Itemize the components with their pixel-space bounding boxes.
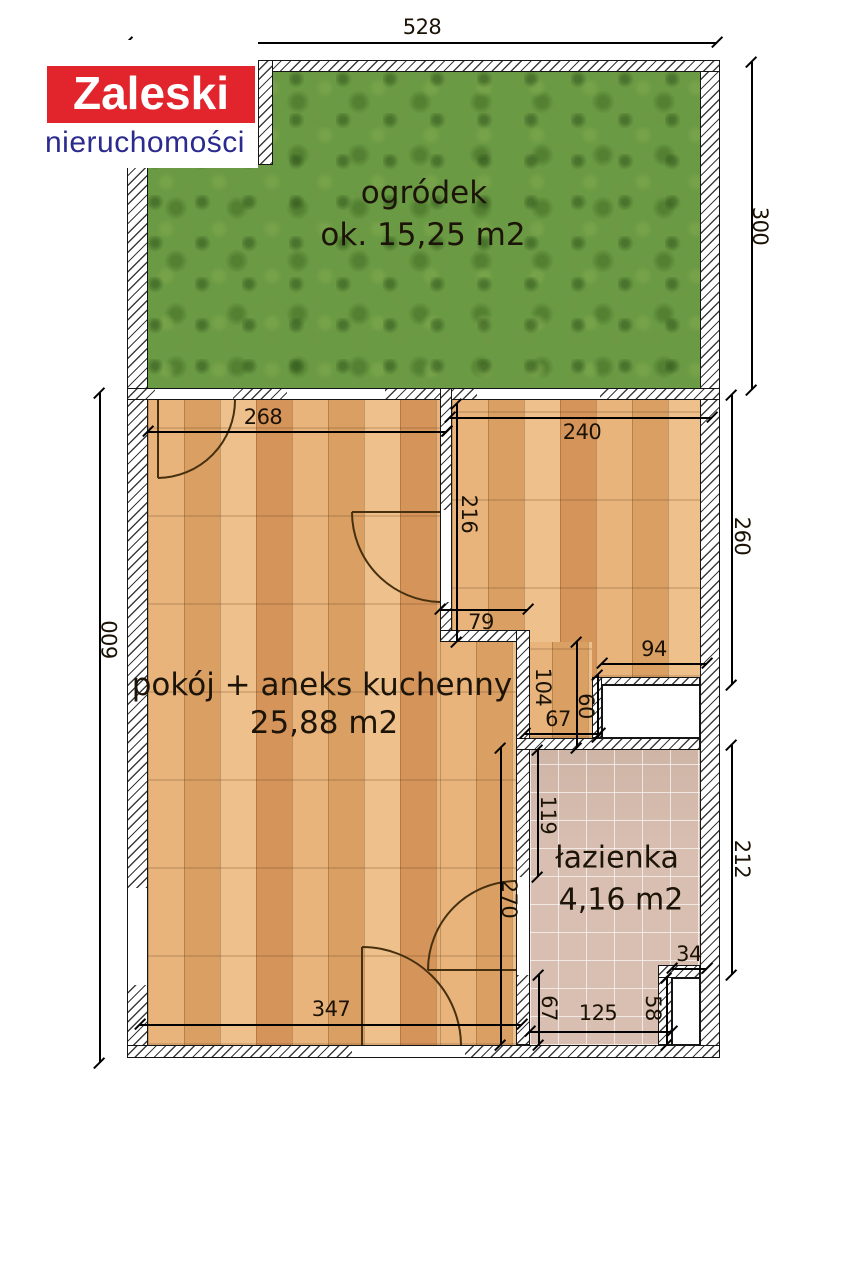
- floor-plan: ogródek ok. 15,25 m2 pokój + aneks kuche…: [0, 0, 853, 1280]
- dimension-label-216: 216: [457, 495, 481, 534]
- dimension-line-125: [530, 1031, 672, 1033]
- dimension-label-528: 528: [403, 15, 442, 39]
- wall-bathroom-top: [516, 738, 700, 750]
- logo-subtitle: nieruchomości: [45, 126, 245, 160]
- bathroom-label: łazienka: [555, 841, 679, 876]
- garden-label: ogródek: [361, 175, 487, 211]
- dimension-line-600: [99, 393, 101, 1063]
- dimension-line-268: [148, 431, 447, 433]
- dimension-label-94: 94: [641, 637, 667, 661]
- dimension-label-104: 104: [531, 668, 555, 707]
- bathroom-area-label: 4,16 m2: [559, 883, 684, 918]
- dimension-label-60: 60: [574, 693, 598, 719]
- garden-door-opening: [155, 388, 233, 400]
- window-living: [287, 388, 385, 400]
- dimension-label-67: 67: [537, 995, 561, 1021]
- logo-brand-text: Zaleski: [73, 70, 229, 120]
- dimension-label-260: 260: [730, 517, 754, 556]
- dimension-line-240: [450, 417, 712, 419]
- dimension-label-79: 79: [468, 610, 494, 634]
- dimension-label-347: 347: [312, 997, 351, 1021]
- living-room-label: pokój + aneks kuchenny: [132, 667, 512, 703]
- wall-right: [700, 60, 720, 1058]
- entrance-door-opening: [352, 1045, 465, 1058]
- logo: Zaleski: [47, 66, 255, 123]
- bathroom-shaft: [672, 978, 700, 1045]
- dimension-label-240: 240: [563, 420, 602, 444]
- dimension-label-212: 212: [730, 840, 754, 879]
- dimension-line-34: [672, 968, 707, 970]
- dimension-label-34: 34: [676, 942, 702, 966]
- living-room-area-label: 25,88 m2: [250, 705, 399, 741]
- dimension-label-67: 67: [545, 707, 571, 731]
- dimension-label-270: 270: [497, 880, 521, 919]
- dimension-line-94: [602, 663, 707, 665]
- wall-niche-top: [592, 677, 700, 685]
- dimension-label-268: 268: [244, 405, 283, 429]
- dimension-line-347: [140, 1024, 522, 1026]
- wall-bathroom-partition: [516, 630, 530, 1045]
- dimension-label-119: 119: [536, 796, 560, 835]
- wall-shaft-top: [658, 965, 700, 978]
- wall-garden-corner-stub: [258, 60, 273, 165]
- kitchen-door-opening: [440, 510, 452, 602]
- dimension-label-125: 125: [579, 1001, 618, 1025]
- dimension-label-58: 58: [641, 995, 665, 1021]
- dimension-line-67: [525, 733, 600, 735]
- window-left-wall: [127, 888, 148, 985]
- dimension-label-300: 300: [748, 207, 772, 246]
- garden-area-label: ok. 15,25 m2: [320, 217, 525, 253]
- window-kitchen: [477, 388, 600, 400]
- dimension-line-58: [666, 978, 668, 1045]
- niche-shaft: [602, 685, 700, 738]
- dimension-label-600: 600: [98, 621, 122, 660]
